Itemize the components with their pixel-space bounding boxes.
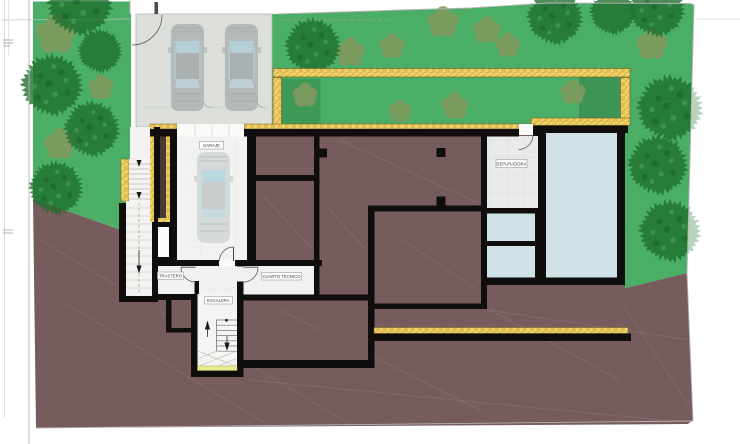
svg-text:GARAJE: GARAJE — [203, 143, 220, 148]
svg-text:ESCALERA: ESCALERA — [207, 298, 230, 303]
svg-text:CUARTO TECNICO: CUARTO TECNICO — [262, 274, 300, 279]
svg-text:DEPURADORA: DEPURADORA — [497, 162, 527, 167]
svg-text:TRASTERO: TRASTERO — [159, 274, 182, 279]
